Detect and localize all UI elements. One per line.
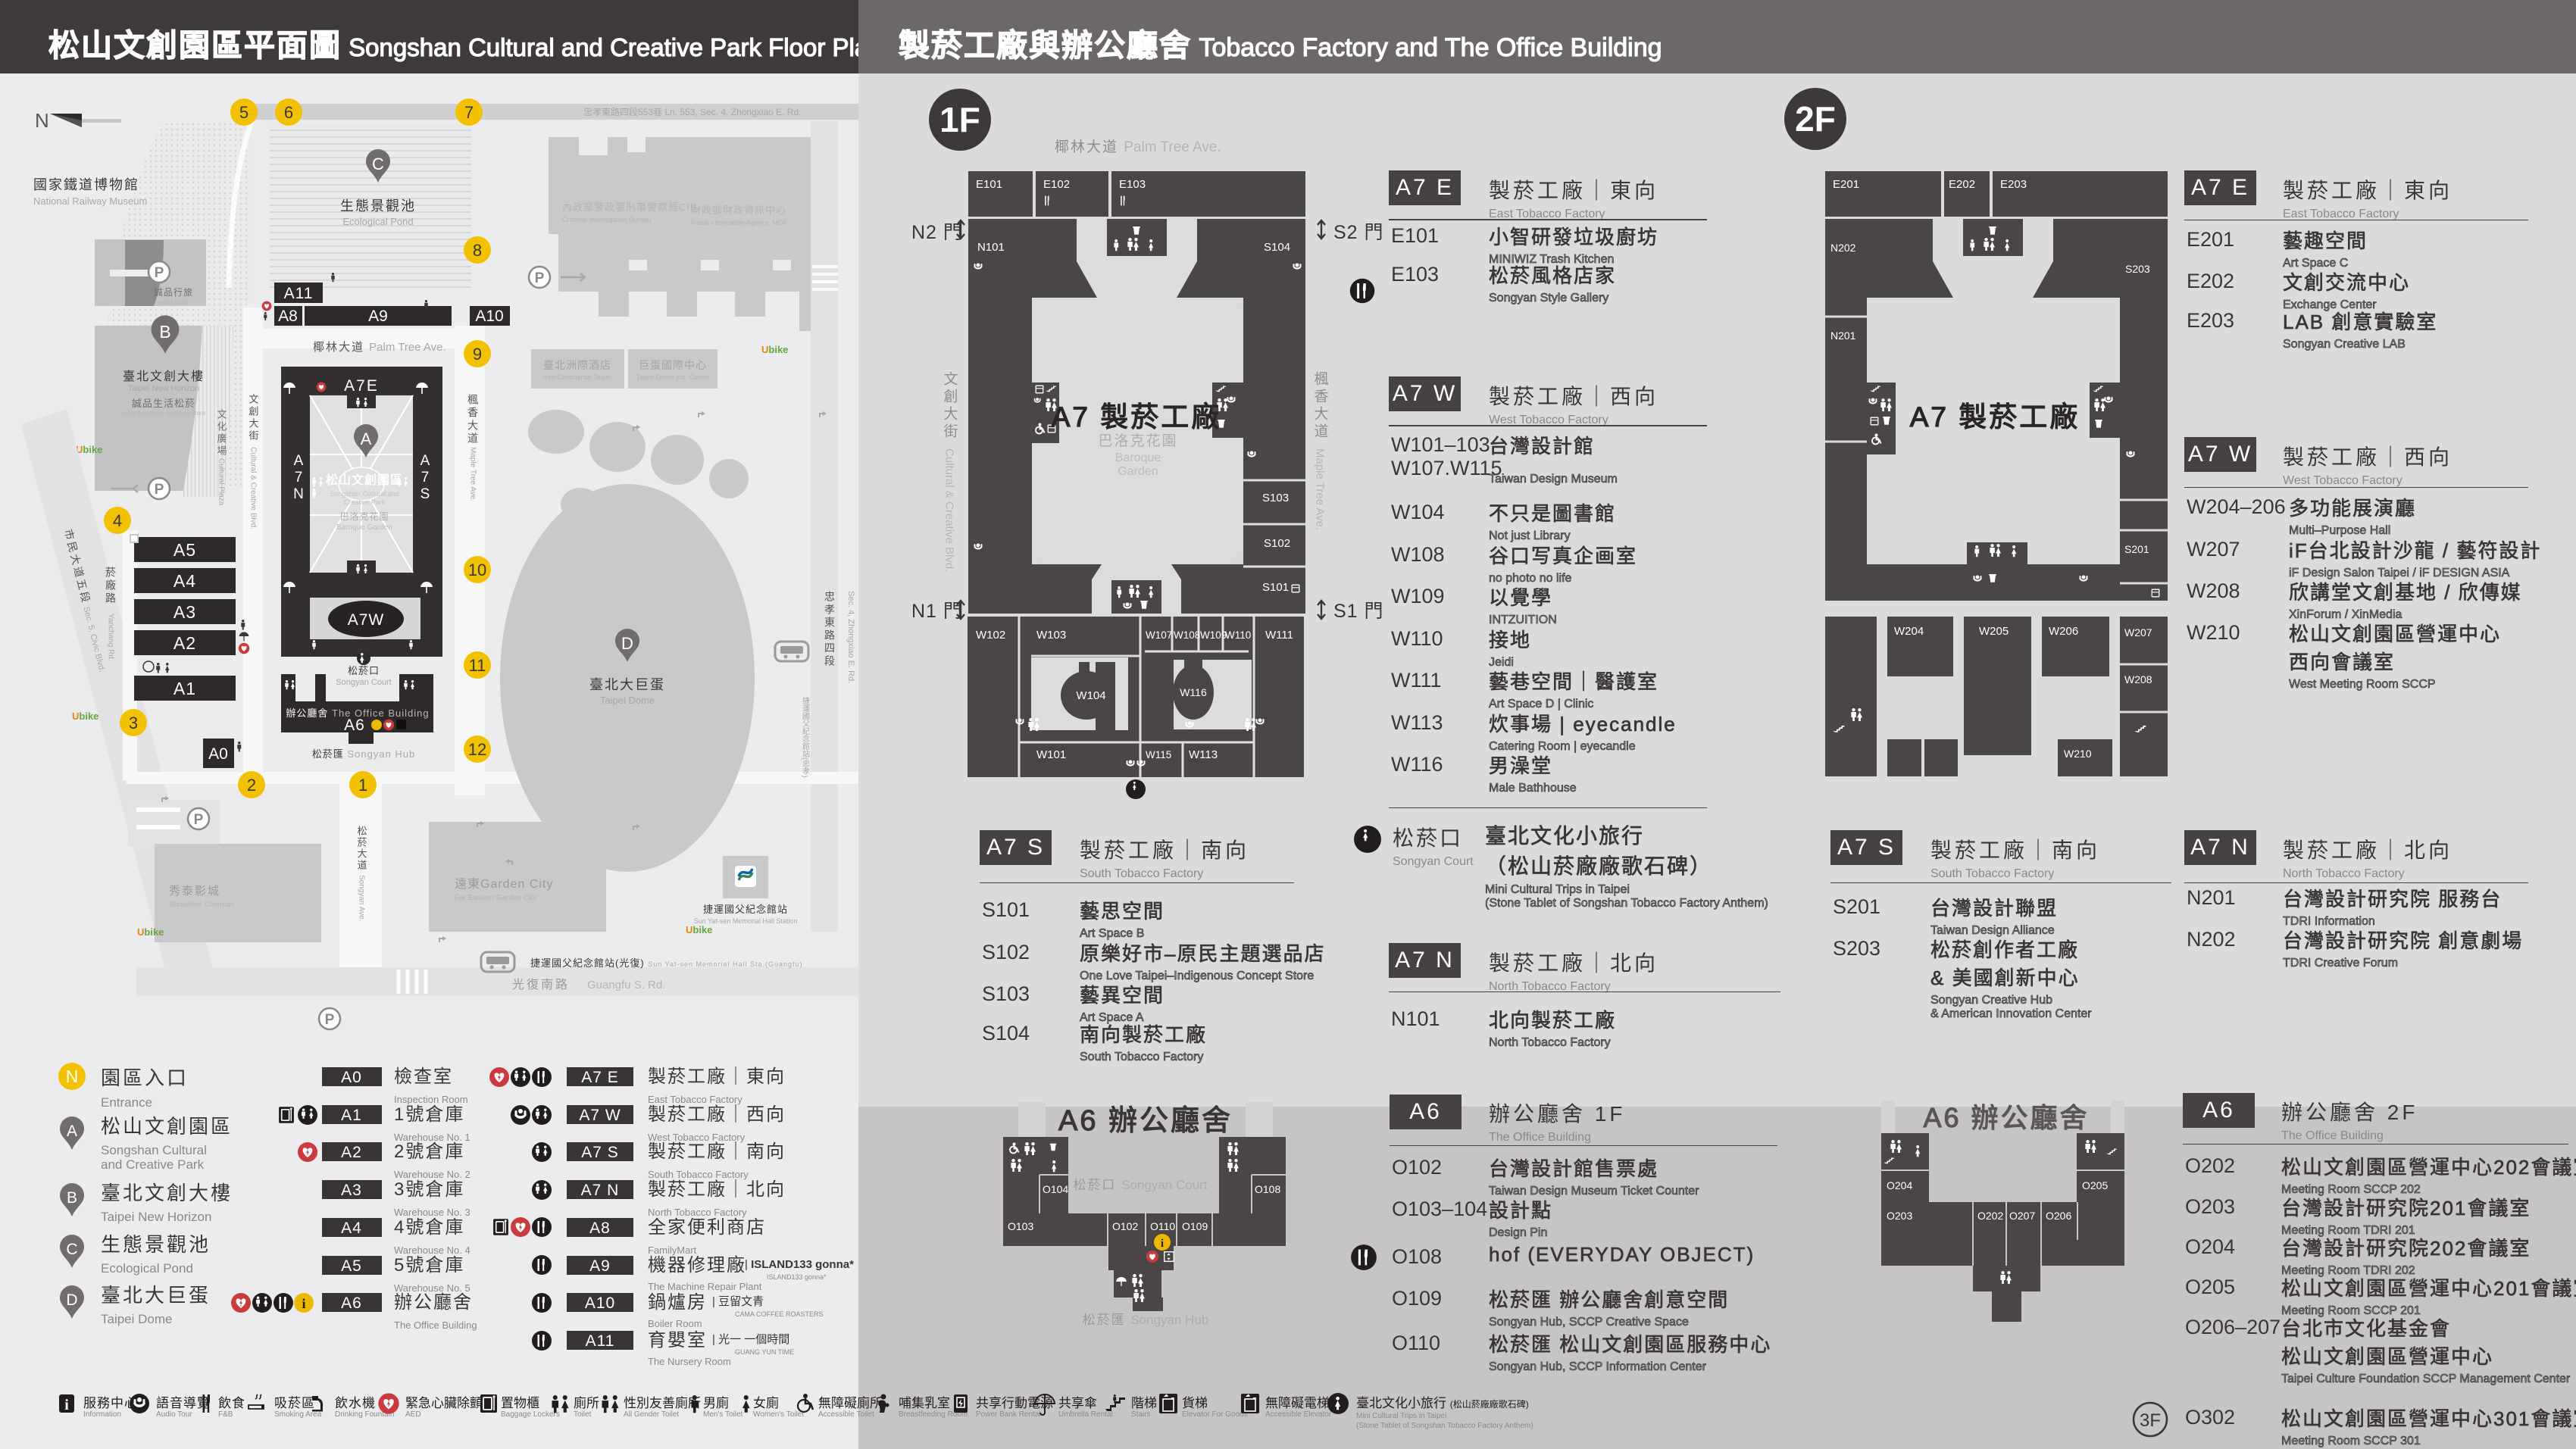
svg-text:3F: 3F [2140, 1410, 2161, 1431]
